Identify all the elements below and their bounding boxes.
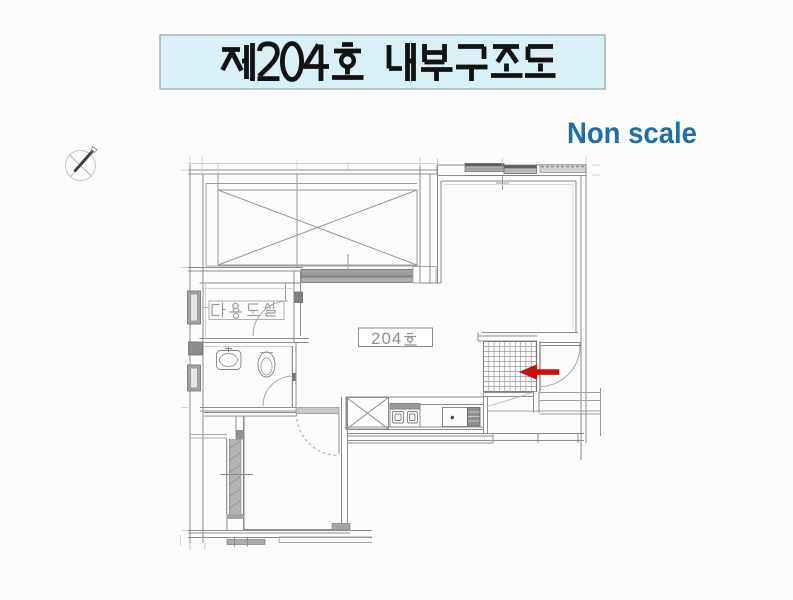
- svg-text:Non scale: Non scale: [567, 117, 697, 150]
- svg-text:204: 204: [371, 329, 402, 348]
